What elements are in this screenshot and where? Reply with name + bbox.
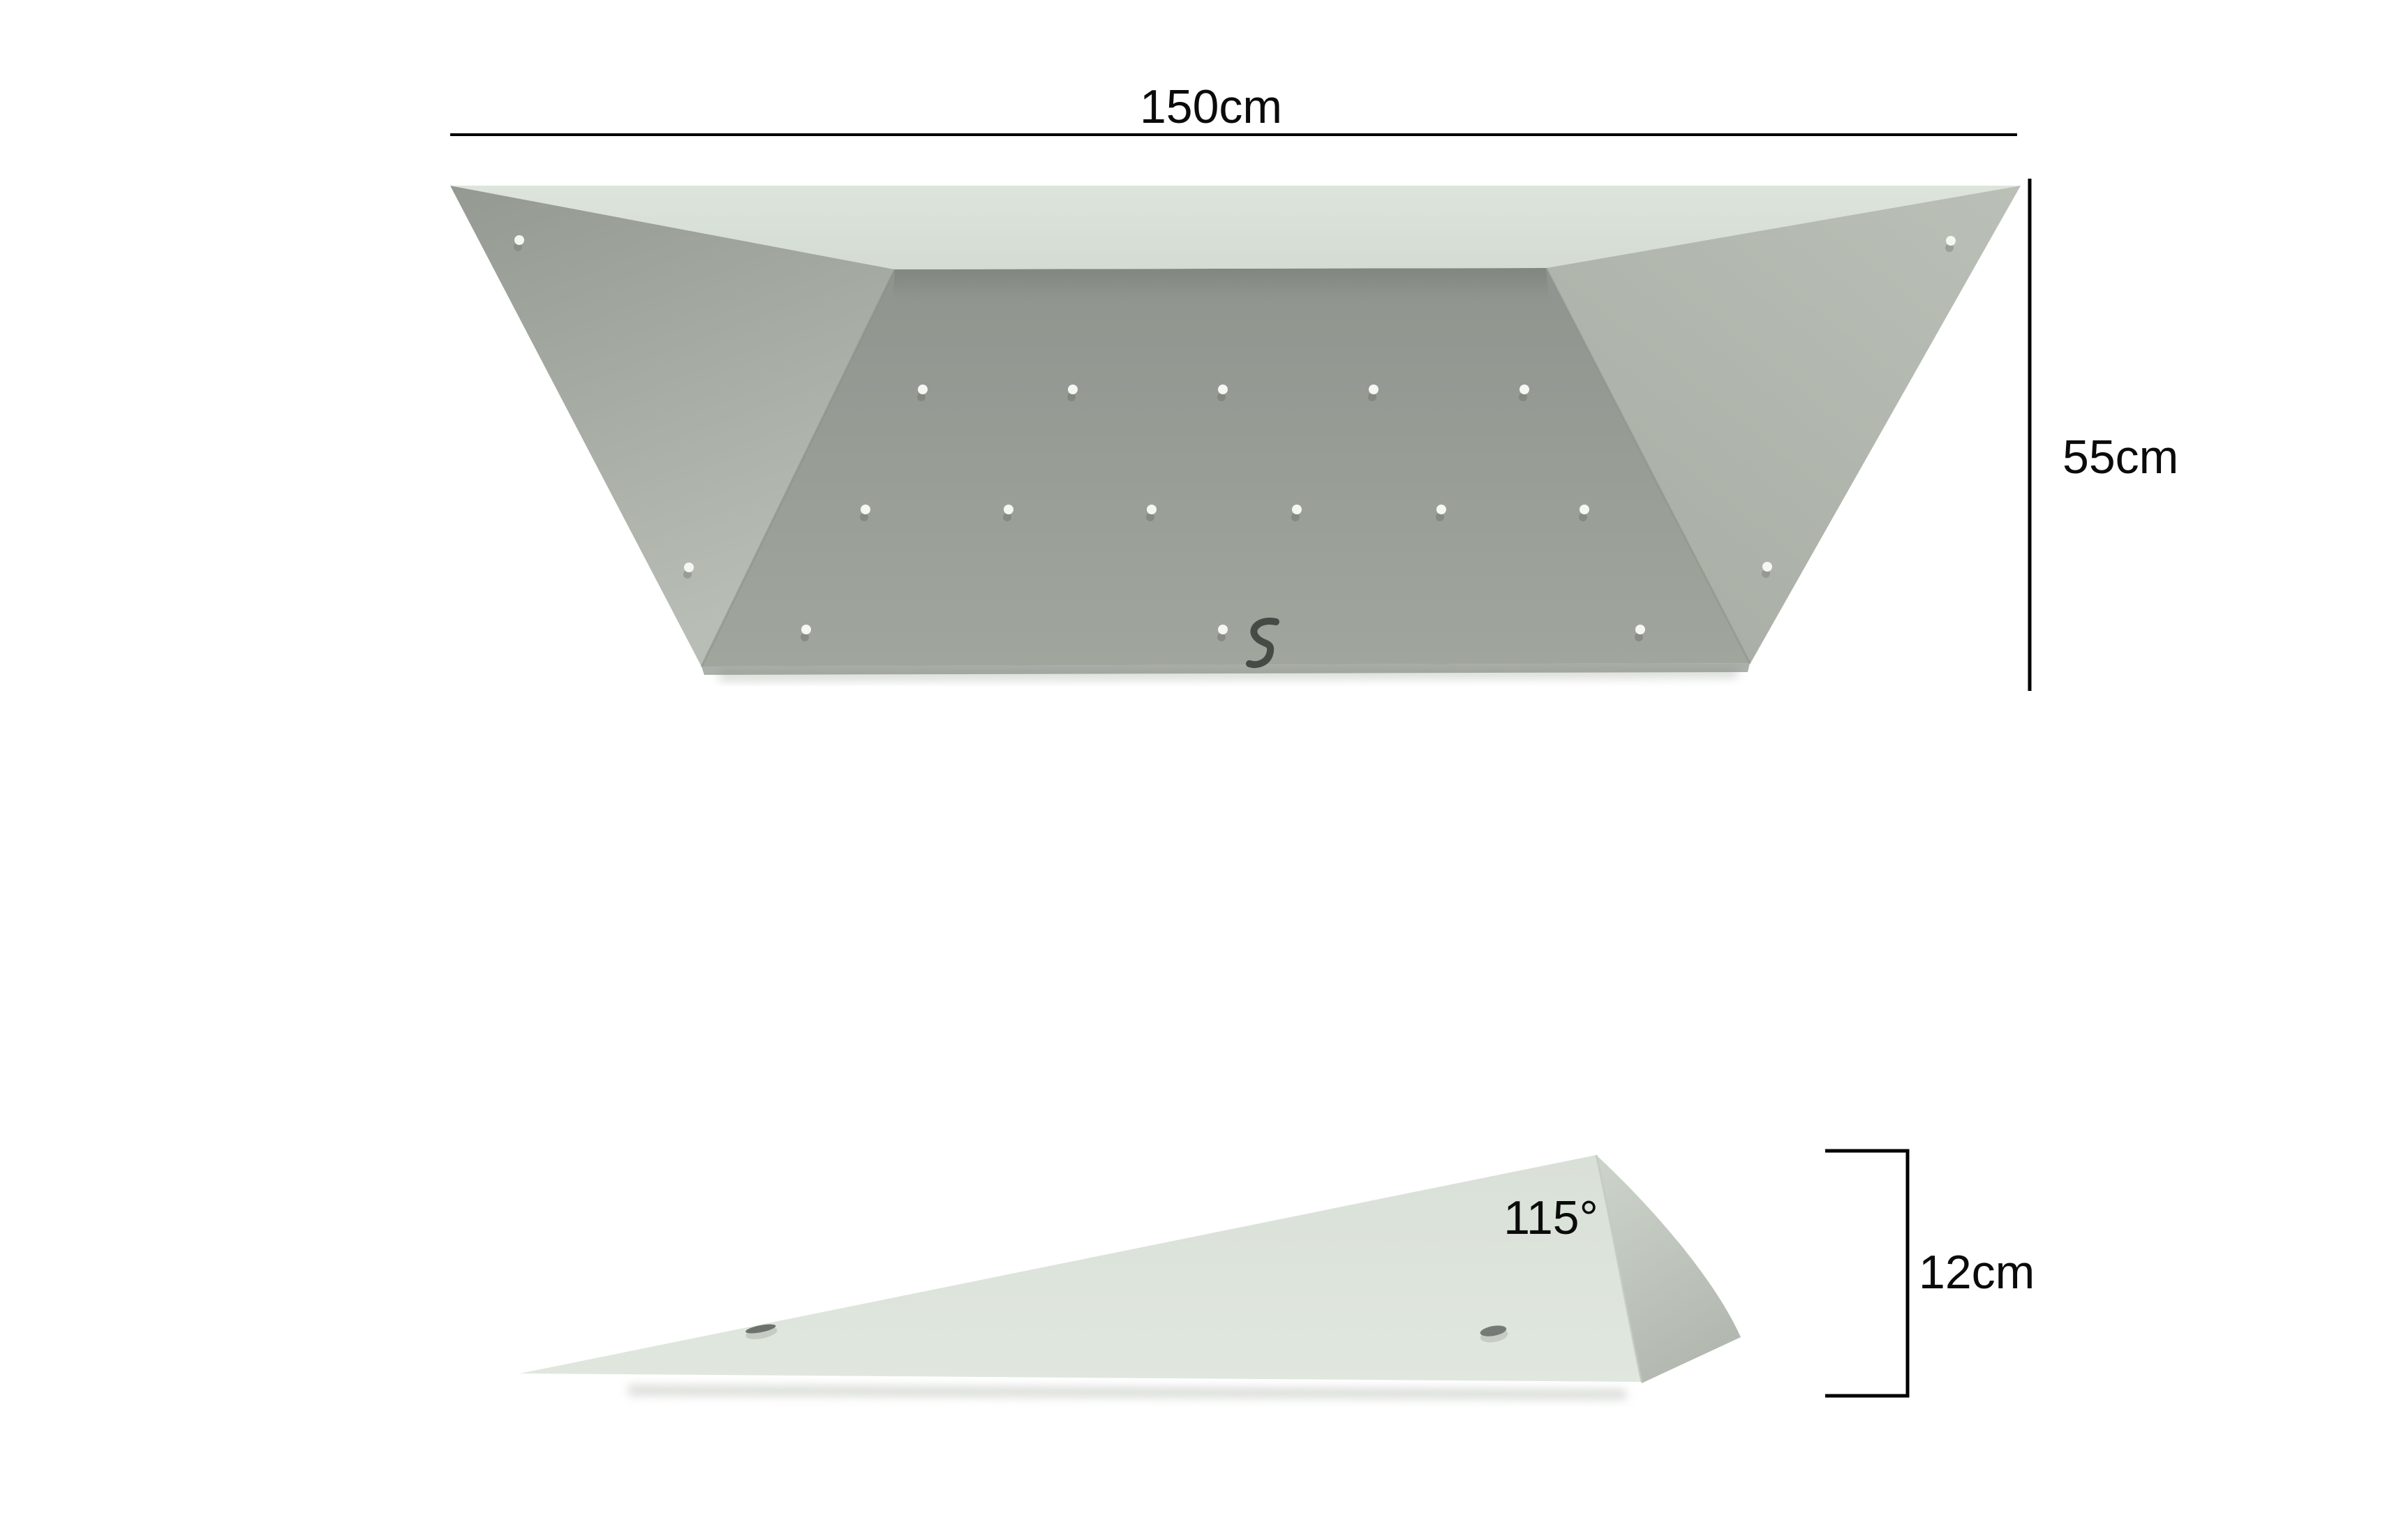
top-view xyxy=(450,135,2030,691)
width-dimension-label: 150cm xyxy=(1140,81,1282,133)
technical-drawing-page: 150cm 55cm 115° 12cm xyxy=(0,0,2408,1527)
depth-dimension-label: 12cm xyxy=(1919,1246,2035,1298)
side-view-ground-shadow xyxy=(628,1390,1626,1394)
profile-main-face xyxy=(520,1155,1642,1382)
climbing-volume-drawing xyxy=(0,0,2408,1527)
angle-dimension-label: 115° xyxy=(1503,1192,1598,1244)
ridge-shadow xyxy=(893,268,1549,300)
height-dimension-label: 55cm xyxy=(2063,431,2178,483)
side-view xyxy=(520,1151,1908,1396)
depth-dimension-bracket xyxy=(1825,1151,1908,1396)
